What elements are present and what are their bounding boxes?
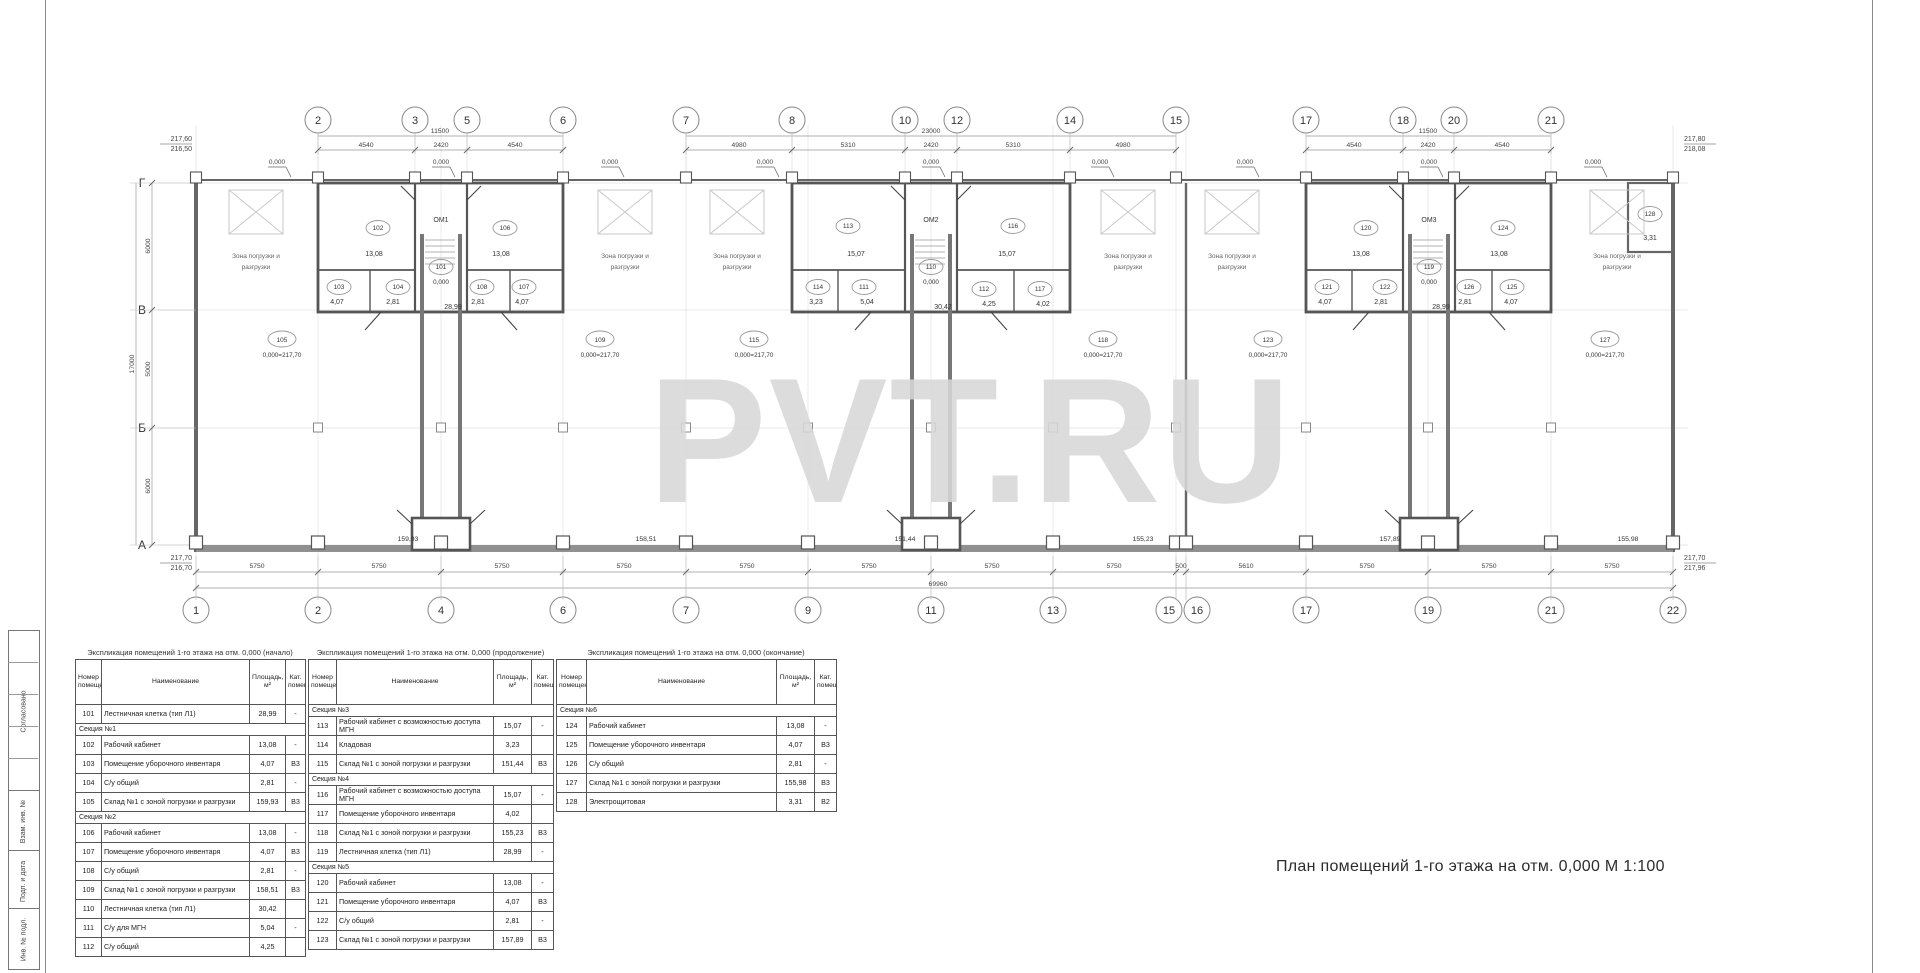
cell-num: 110: [76, 900, 102, 919]
column-header: Кат. помещения: [815, 660, 837, 705]
loading-zone-label: разгрузки: [242, 264, 271, 271]
elevation-mark: 217,70: [171, 555, 193, 562]
column-bottom: [312, 536, 325, 549]
grid-number-top: 15: [1170, 115, 1182, 127]
column-header: Площадь, м²: [250, 660, 286, 705]
stair-name-label: ОМ1: [433, 217, 448, 224]
cell-num: 114: [309, 736, 337, 755]
flag-leader: [450, 167, 455, 177]
table-row: 116Рабочий кабинет с возможностью доступ…: [309, 786, 554, 805]
cell-cat: -: [286, 736, 306, 755]
grid-number-top: 3: [412, 115, 418, 127]
cell-cat: В3: [532, 824, 554, 843]
cell-area: 158,51: [250, 881, 286, 900]
stair-area: 28,99: [444, 304, 462, 311]
loading-zone-label: разгрузки: [1114, 264, 1143, 271]
grid-number-top: 21: [1545, 115, 1557, 127]
section-module-walls: [1306, 183, 1551, 312]
loading-zone-label: Зона погрузки и: [1208, 253, 1256, 260]
cell-num: 111: [76, 919, 102, 938]
cell-cat: -: [286, 824, 306, 843]
cell-num: 102: [76, 736, 102, 755]
room-number: 121: [1322, 284, 1333, 291]
cell-num: 119: [309, 843, 337, 862]
column-mid: [1547, 423, 1556, 432]
warehouse-number: 109: [595, 337, 606, 344]
column-top: [1449, 172, 1460, 183]
dim-segment-top: 2420: [433, 142, 448, 149]
section-header-row: Секция №4: [309, 774, 554, 786]
cell-name: Рабочий кабинет: [337, 874, 494, 893]
cell-name: Склад №1 с зоной погрузки и разгрузки: [102, 793, 250, 812]
cell-area: 4,07: [250, 843, 286, 862]
cell-cat: -: [532, 717, 554, 736]
room-number: 113: [843, 223, 854, 230]
cell-area: 155,98: [777, 774, 815, 793]
dim-total-left: 17000: [129, 354, 136, 373]
column-header: Площадь, м²: [494, 660, 532, 705]
door-swing: [401, 186, 415, 200]
dim-total-bottom: 69960: [929, 581, 948, 588]
cell-name: Кладовая: [337, 736, 494, 755]
grid-number-top: 5: [464, 115, 470, 127]
cell-cat: В3: [532, 931, 554, 950]
cell-name: С/у для МГН: [102, 919, 250, 938]
cell-cat: В2: [815, 793, 837, 812]
room-area: 13,08: [492, 251, 510, 258]
stair-area: 30,42: [934, 304, 952, 311]
cell-num: 103: [76, 755, 102, 774]
room-area: 3,23: [809, 299, 823, 306]
dim-segment-top: 2420: [1420, 142, 1435, 149]
schedule-title: Экспликация помещений 1-го этажа на отм.…: [556, 648, 836, 657]
column-top: [952, 172, 963, 183]
cell-name: Электрощитовая: [587, 793, 777, 812]
cell-name: Помещение уборочного инвентаря: [102, 755, 250, 774]
stair-level: 0,000: [1421, 279, 1437, 286]
flag-leader: [774, 167, 779, 177]
cell-area: 3,31: [777, 793, 815, 812]
schedule-table-1: Экспликация помещений 1-го этажа на отм.…: [75, 648, 305, 957]
cell-name: С/у общий: [337, 912, 494, 931]
column-header: Номер помещения: [76, 660, 102, 705]
drawing-title: План помещений 1-го этажа на отм. 0,000 …: [1276, 858, 1665, 876]
cell-num: 124: [557, 717, 587, 736]
stamp-signature-line: [8, 758, 38, 759]
cell-name: Лестничная клетка (тип Л1): [102, 705, 250, 724]
column-top: [1546, 172, 1557, 183]
section-header-row: Секция №6: [557, 705, 837, 717]
loading-zone-label: разгрузки: [1218, 264, 1247, 271]
grid-number-top: 10: [899, 115, 911, 127]
column-top: [1398, 172, 1409, 183]
cell-cat: -: [815, 755, 837, 774]
stamp-field-label: Подп. и дата: [21, 860, 28, 901]
stamp-field-label: Взам. инв. №: [21, 799, 28, 842]
dim-total-top: 11500: [1419, 128, 1438, 135]
room-area: 4,07: [515, 299, 529, 306]
room-number: 107: [519, 284, 530, 291]
grid-number-top: 8: [789, 115, 795, 127]
table-row: 113Рабочий кабинет с возможностью доступ…: [309, 717, 554, 736]
cell-num: 127: [557, 774, 587, 793]
loading-zone-label: Зона погрузки и: [232, 253, 280, 260]
dim-segment-bottom: 5750: [1106, 563, 1121, 570]
door-swing: [991, 312, 1007, 330]
loading-zone-label: Зона погрузки и: [1593, 253, 1641, 260]
dim-segment-left: 5000: [145, 361, 152, 376]
cell-num: 118: [309, 824, 337, 843]
cell-name: Помещение уборочного инвентаря: [337, 893, 494, 912]
dim-segment-top: 5310: [1005, 142, 1020, 149]
table-row: 120Рабочий кабинет13,08-: [309, 874, 554, 893]
grid-number-bottom: 15: [1163, 605, 1175, 617]
column-top: [1171, 172, 1182, 183]
cell-name: С/у общий: [102, 862, 250, 881]
schedule-grid: Номер помещенияНаименованиеПлощадь, м²Ка…: [75, 659, 306, 957]
column-header: Кат. помещения: [286, 660, 306, 705]
cell-area: 4,02: [494, 805, 532, 824]
grid-number-bottom: 21: [1545, 605, 1557, 617]
elevation-mark: 218,08: [1684, 146, 1706, 153]
room-area: 13,08: [1352, 251, 1370, 258]
cell-cat: -: [532, 912, 554, 931]
column-top: [313, 172, 324, 183]
cell-cat: В3: [815, 736, 837, 755]
warehouse-area: 159,93: [398, 536, 419, 543]
flag-leader: [1438, 167, 1443, 177]
room-area: 13,08: [1490, 251, 1508, 258]
flag-leader: [1109, 167, 1114, 177]
loading-zone-label: разгрузки: [723, 264, 752, 271]
zero-level-flag: 0,000: [433, 159, 450, 166]
cell-area: 13,08: [777, 717, 815, 736]
zero-level-flag: 0,000: [269, 159, 286, 166]
cell-area: 151,44: [494, 755, 532, 774]
cell-num: 125: [557, 736, 587, 755]
column-top: [191, 172, 202, 183]
room-number: 116: [1008, 223, 1019, 230]
stair-shaft-wall: [1446, 234, 1450, 518]
cell-cat: [286, 900, 306, 919]
cell-cat: [532, 736, 554, 755]
cell-area: 5,04: [250, 919, 286, 938]
room-number: 124: [1498, 225, 1509, 232]
cell-num: 126: [557, 755, 587, 774]
grid-number-top: 7: [683, 115, 689, 127]
cell-cat: В3: [532, 893, 554, 912]
column-top: [900, 172, 911, 183]
cell-area: 4,07: [250, 755, 286, 774]
column-top: [410, 172, 421, 183]
cell-cat: -: [815, 717, 837, 736]
cell-cat: -: [532, 874, 554, 893]
column-top: [462, 172, 473, 183]
dim-segment-bottom: 5750: [249, 563, 264, 570]
cell-num: 112: [76, 938, 102, 957]
column-top: [1301, 172, 1312, 183]
stair-number: 101: [436, 264, 447, 271]
column-top: [558, 172, 569, 183]
zero-level-flag: 0,000: [1092, 159, 1109, 166]
cell-name: Рабочий кабинет с возможностью доступа М…: [337, 786, 494, 805]
dim-segment-bottom: 5750: [861, 563, 876, 570]
room-area: 13,08: [365, 251, 383, 258]
flag-leader: [619, 167, 624, 177]
table-row: 110Лестничная клетка (тип Л1)30,42: [76, 900, 306, 919]
table-row: 115Склад №1 с зоной погрузки и разгрузки…: [309, 755, 554, 774]
cell-cat: -: [286, 919, 306, 938]
zero-level-flag: 0,000: [757, 159, 774, 166]
door-swing: [957, 186, 971, 200]
column-bottom: [435, 536, 448, 549]
cell-area: 4,07: [494, 893, 532, 912]
cell-area: 2,81: [494, 912, 532, 931]
grid-number-bottom: 9: [805, 605, 811, 617]
table-row: 103Помещение уборочного инвентаря4,07В3: [76, 755, 306, 774]
elevation-mark: 216,70: [171, 565, 193, 572]
cell-cat: -: [286, 862, 306, 881]
table-row: 104С/у общий2,81-: [76, 774, 306, 793]
dim-segment-left: 6000: [145, 478, 152, 493]
column-mid: [437, 423, 446, 432]
loading-zone-label: разгрузки: [1603, 264, 1632, 271]
cell-area: 157,89: [494, 931, 532, 950]
loading-zone-label: Зона погрузки и: [1104, 253, 1152, 260]
table-row: 121Помещение уборочного инвентаря4,07В3: [309, 893, 554, 912]
cell-area: 2,81: [250, 774, 286, 793]
cell-cat: В3: [532, 755, 554, 774]
cell-area: 4,25: [250, 938, 286, 957]
warehouse-level: 0,000=217,70: [1586, 352, 1625, 359]
dim-segment-bottom: 5750: [371, 563, 386, 570]
stair-name-label: ОМ3: [1421, 217, 1436, 224]
table-row: 111С/у для МГН5,04-: [76, 919, 306, 938]
room-number: 106: [500, 225, 511, 232]
grid-number-bottom: 7: [683, 605, 689, 617]
flag-leader: [1254, 167, 1259, 177]
cell-cat: В3: [286, 843, 306, 862]
flag-leader: [1602, 167, 1607, 177]
room-number: 125: [1507, 284, 1518, 291]
dim-total-top: 11500: [431, 128, 450, 135]
cell-name: Рабочий кабинет: [587, 717, 777, 736]
dim-segment-bottom: 500: [1175, 563, 1187, 570]
room-number: 112: [979, 286, 990, 293]
room-number: 117: [1035, 286, 1046, 293]
cell-num: 122: [309, 912, 337, 931]
table-row: 128Электрощитовая3,31В2: [557, 793, 837, 812]
grid-number-bottom: 22: [1667, 605, 1679, 617]
room-area: 2,81: [471, 299, 485, 306]
elevation-mark: 217,96: [1684, 565, 1706, 572]
table-row: 122С/у общий2,81-: [309, 912, 554, 931]
door-swing: [1455, 186, 1469, 200]
stamp-field: Согласовано: [8, 630, 40, 792]
column-mid: [314, 423, 323, 432]
grid-number-top: 6: [560, 115, 566, 127]
grid-number-bottom: 4: [438, 605, 444, 617]
column-header: Номер помещения: [309, 660, 337, 705]
cell-area: 159,93: [250, 793, 286, 812]
table-row: 119Лестничная клетка (тип Л1)28,99-: [309, 843, 554, 862]
schedule-table-3: Экспликация помещений 1-го этажа на отм.…: [556, 648, 836, 812]
column-top: [681, 172, 692, 183]
grid-number-top: 17: [1300, 115, 1312, 127]
stamp-signature-line: [8, 726, 38, 727]
cell-num: 113: [309, 717, 337, 736]
room-area: 15,07: [847, 251, 865, 258]
dim-segment-bottom: 5750: [739, 563, 754, 570]
dim-total-top: 23000: [922, 128, 941, 135]
cell-name: Лестничная клетка (тип Л1): [102, 900, 250, 919]
schedule-title: Экспликация помещений 1-го этажа на отм.…: [75, 648, 305, 657]
cell-cat: -: [532, 843, 554, 862]
room-area: 4,07: [1504, 299, 1518, 306]
room-number: 120: [1361, 225, 1372, 232]
room-area: 4,02: [1036, 301, 1050, 308]
column-header: Кат. помещения: [532, 660, 554, 705]
door-swing: [855, 312, 871, 330]
cell-num: 123: [309, 931, 337, 950]
cell-cat: В3: [815, 774, 837, 793]
door-swing: [1353, 312, 1369, 330]
cell-num: 128: [557, 793, 587, 812]
section-module-walls: [318, 183, 563, 312]
stair-shaft-wall: [420, 234, 424, 518]
column-header: Наименование: [337, 660, 494, 705]
room-area: 4,07: [1318, 299, 1332, 306]
cell-area: 4,07: [777, 736, 815, 755]
column-top: [1668, 172, 1679, 183]
cell-cat: -: [532, 786, 554, 805]
column-bottom: [190, 536, 203, 549]
cell-num: 120: [309, 874, 337, 893]
column-header: Номер помещения: [557, 660, 587, 705]
stair-number: 110: [926, 264, 937, 271]
room-area: 2,81: [1458, 299, 1472, 306]
room-area: 3,31: [1643, 235, 1657, 242]
grid-number-top: 18: [1397, 115, 1409, 127]
room-area: 4,25: [982, 301, 996, 308]
grid-number-top: 2: [315, 115, 321, 127]
cell-cat: -: [286, 705, 306, 724]
grid-number-bottom: 2: [315, 605, 321, 617]
section-header-row: Секция №1: [76, 724, 306, 736]
door-swing: [470, 510, 485, 524]
room-number: 126: [1464, 284, 1475, 291]
dim-segment-bottom: 5750: [984, 563, 999, 570]
table-row: 123Склад №1 с зоной погрузки и разгрузки…: [309, 931, 554, 950]
table-row: 117Помещение уборочного инвентаря4,02: [309, 805, 554, 824]
cell-name: С/у общий: [102, 938, 250, 957]
grid-number-top: 12: [951, 115, 963, 127]
door-swing: [1489, 312, 1505, 330]
cell-num: 117: [309, 805, 337, 824]
grid-number-bottom: 19: [1422, 605, 1434, 617]
room-number: 104: [393, 284, 404, 291]
cell-num: 109: [76, 881, 102, 900]
door-swing: [365, 312, 381, 330]
column-top: [787, 172, 798, 183]
dim-segment-top: 4540: [1494, 142, 1509, 149]
schedule-title: Экспликация помещений 1-го этажа на отм.…: [308, 648, 553, 657]
column-mid: [559, 423, 568, 432]
cell-name: Помещение уборочного инвентаря: [337, 805, 494, 824]
cell-area: 28,99: [494, 843, 532, 862]
cell-num: 106: [76, 824, 102, 843]
cell-name: Помещение уборочного инвентаря: [587, 736, 777, 755]
elevation-mark: 216,50: [171, 146, 193, 153]
grid-number-bottom: 11: [925, 605, 936, 617]
column-header: Наименование: [587, 660, 777, 705]
cell-name: Рабочий кабинет: [102, 824, 250, 843]
section-header-row: Секция №3: [309, 705, 554, 717]
door-swing: [1458, 510, 1473, 524]
stamp-field: Подп. и дата: [8, 850, 40, 912]
column-bottom: [557, 536, 570, 549]
zero-level-flag: 0,000: [1585, 159, 1602, 166]
cell-area: 13,08: [250, 824, 286, 843]
cell-area: 15,07: [494, 717, 532, 736]
door-swing: [467, 186, 481, 200]
cell-area: 30,42: [250, 900, 286, 919]
cell-area: 2,81: [250, 862, 286, 881]
cell-name: Помещение уборочного инвентаря: [102, 843, 250, 862]
table-row: 109Склад №1 с зоной погрузки и разгрузки…: [76, 881, 306, 900]
dim-segment-top: 4540: [358, 142, 373, 149]
warehouse-number: 127: [1600, 337, 1611, 344]
room-number: 114: [813, 284, 824, 291]
cell-num: 107: [76, 843, 102, 862]
table-row: 107Помещение уборочного инвентаря4,07В3: [76, 843, 306, 862]
cell-name: Склад №1 с зоной погрузки и разгрузки: [337, 755, 494, 774]
table-row: 127Склад №1 с зоной погрузки и разгрузки…: [557, 774, 837, 793]
cell-num: 116: [309, 786, 337, 805]
cell-num: 101: [76, 705, 102, 724]
column-header: Наименование: [102, 660, 250, 705]
table-row: 105Склад №1 с зоной погрузки и разгрузки…: [76, 793, 306, 812]
column-bottom: [1545, 536, 1558, 549]
stair-area: 28,99: [1432, 304, 1450, 311]
room-number: 103: [334, 284, 345, 291]
table-row: 101Лестничная клетка (тип Л1)28,99-: [76, 705, 306, 724]
stair-number: 119: [1424, 264, 1435, 271]
door-swing: [501, 312, 517, 330]
dim-segment-bottom: 5610: [1238, 563, 1253, 570]
room-area: 15,07: [998, 251, 1016, 258]
room-number: 108: [477, 284, 488, 291]
elevation-mark: 217,80: [1684, 136, 1706, 143]
cell-cat: [532, 805, 554, 824]
room-number: 111: [859, 284, 869, 291]
door-swing: [1389, 186, 1403, 200]
cell-area: 155,23: [494, 824, 532, 843]
cell-area: 13,08: [250, 736, 286, 755]
table-row: 126С/у общий2,81-: [557, 755, 837, 774]
cell-area: 2,81: [777, 755, 815, 774]
warehouse-level: 0,000=217,70: [581, 352, 620, 359]
dim-segment-top: 5310: [840, 142, 855, 149]
stamp-signature-line: [8, 694, 38, 695]
cell-name: Склад №1 с зоной погрузки и разгрузки: [337, 824, 494, 843]
schedule-grid: Номер помещенияНаименованиеПлощадь, м²Ка…: [308, 659, 554, 950]
table-row: 124Рабочий кабинет13,08-: [557, 717, 837, 736]
elevation-mark: 217,70: [1684, 555, 1706, 562]
warehouse-area: 157,89: [1380, 536, 1401, 543]
room-number: 128: [1645, 211, 1656, 218]
grid-number-bottom: 16: [1191, 605, 1203, 617]
